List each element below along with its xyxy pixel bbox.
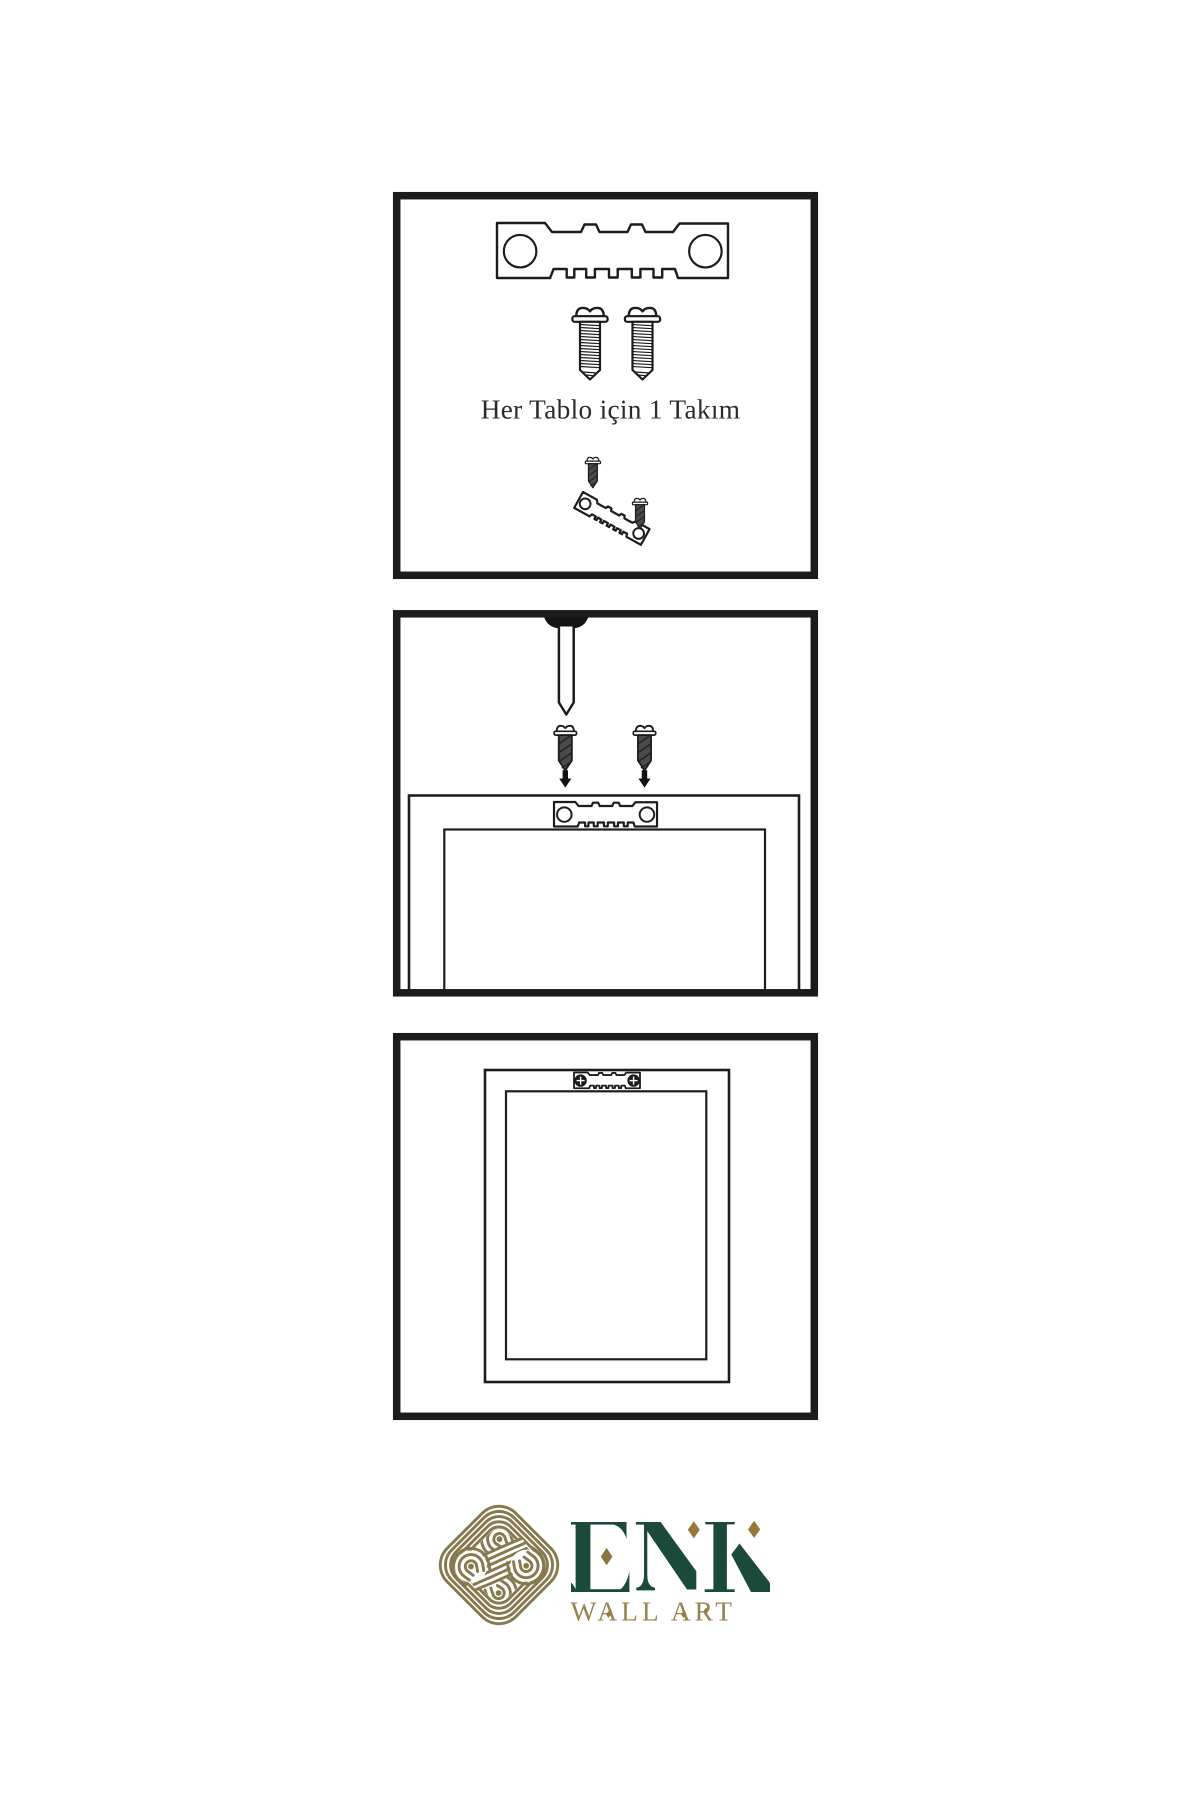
svg-text:Her Tablo için 1 Takım: Her Tablo için 1 Takım <box>481 394 741 424</box>
svg-text:WALL ART: WALL ART <box>571 1596 737 1626</box>
